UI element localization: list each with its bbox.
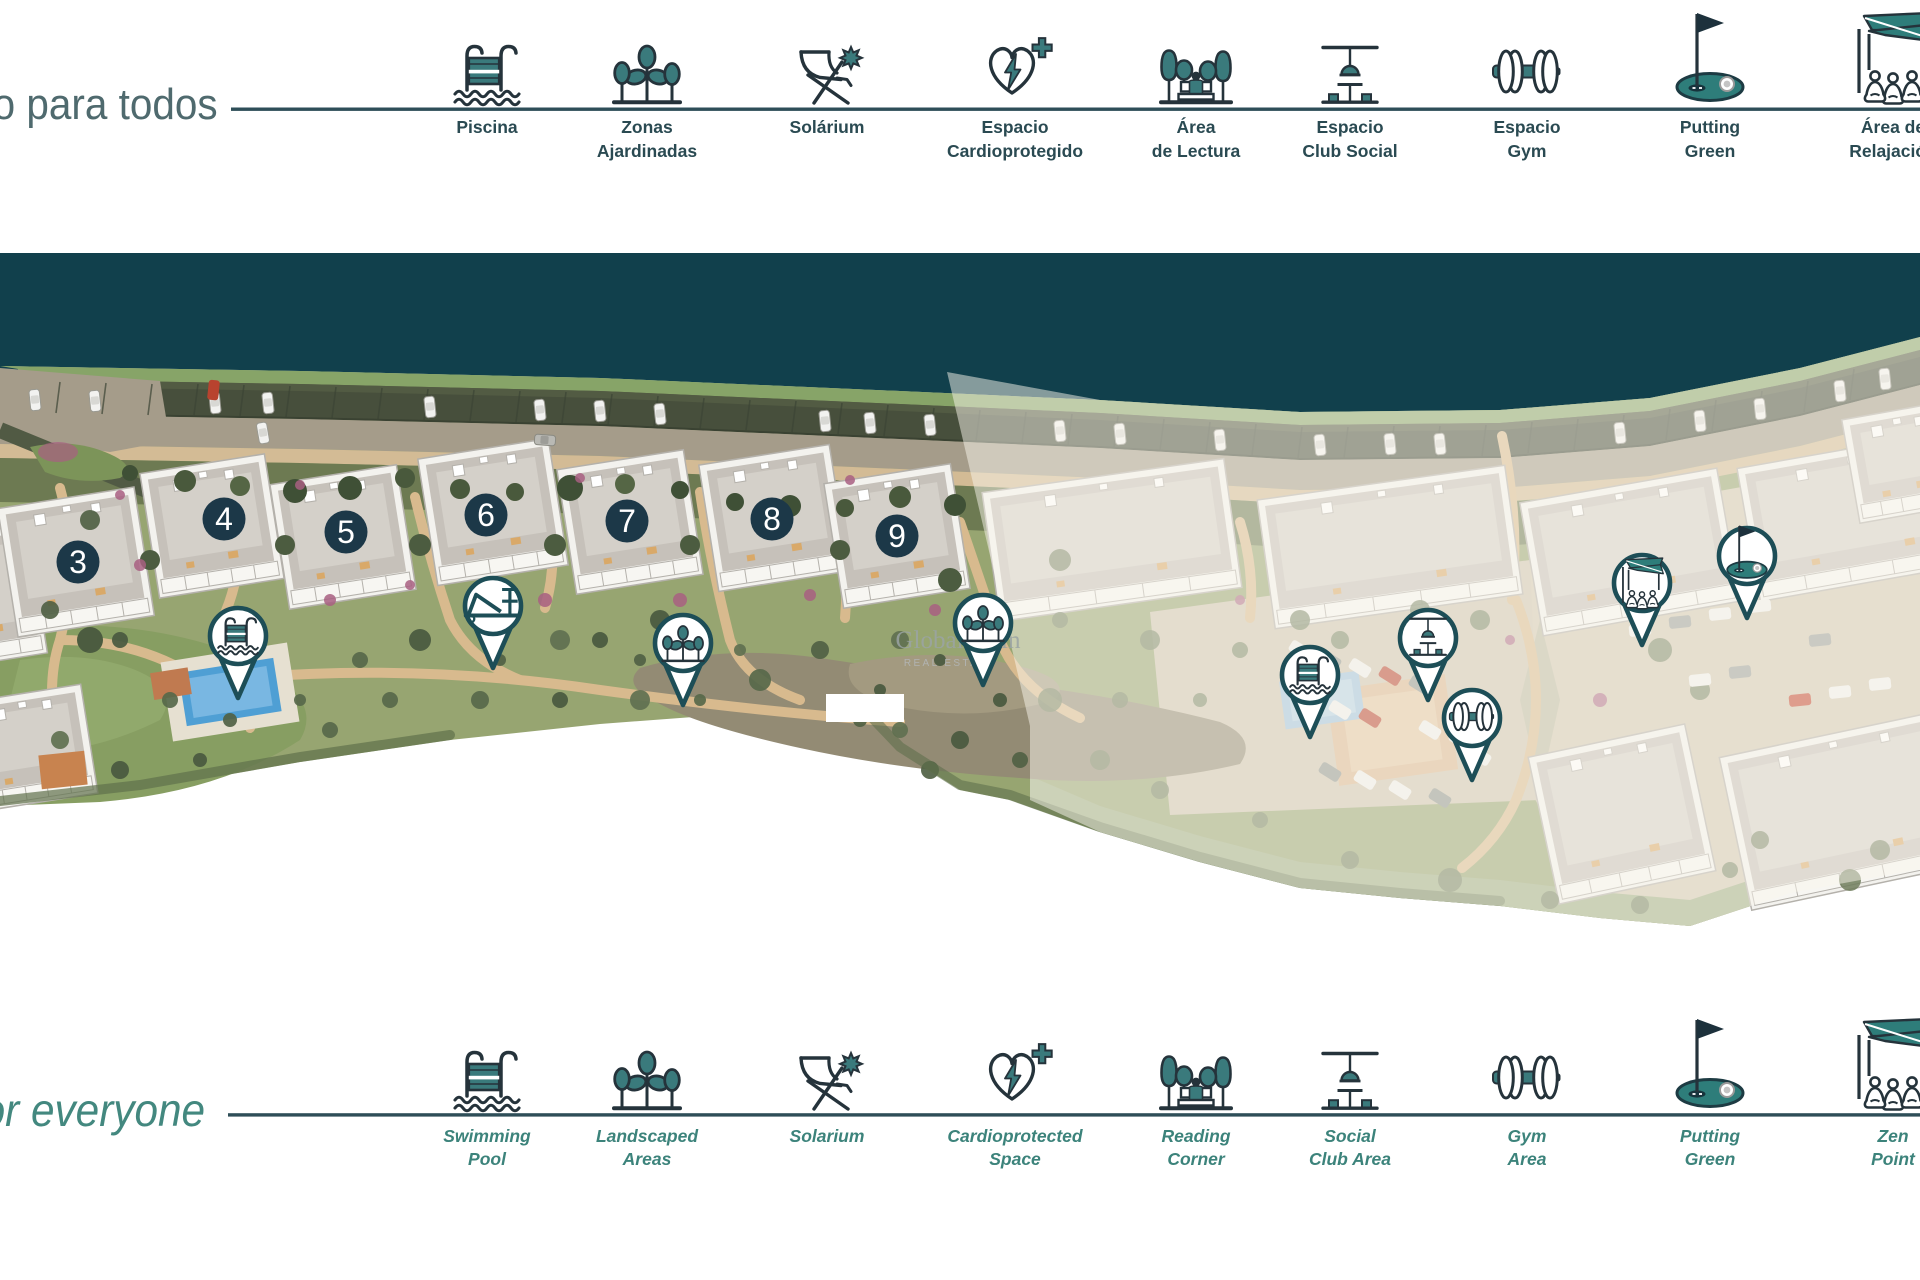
svg-text:6: 6 bbox=[477, 497, 495, 533]
svg-text:Social: Social bbox=[1324, 1126, 1377, 1146]
svg-text:Areas: Areas bbox=[622, 1149, 672, 1169]
svg-text:Green: Green bbox=[1685, 141, 1736, 161]
svg-text:Space: Space bbox=[989, 1149, 1041, 1169]
svg-text:Gym: Gym bbox=[1508, 141, 1547, 161]
svg-text:Point: Point bbox=[1871, 1149, 1916, 1169]
svg-text:Ajardinadas: Ajardinadas bbox=[597, 141, 697, 161]
svg-text:Putting: Putting bbox=[1680, 1126, 1741, 1146]
svg-text:Solárium: Solárium bbox=[790, 117, 865, 137]
svg-text:Corner: Corner bbox=[1167, 1149, 1226, 1169]
svg-text:Área: Área bbox=[1177, 116, 1216, 137]
svg-text:4: 4 bbox=[215, 501, 233, 537]
svg-text:Zen: Zen bbox=[1876, 1126, 1908, 1146]
svg-text:de Lectura: de Lectura bbox=[1152, 141, 1241, 161]
svg-text:Gym: Gym bbox=[1508, 1126, 1547, 1146]
svg-text:Área de: Área de bbox=[1861, 116, 1920, 137]
svg-text:Landscaped: Landscaped bbox=[596, 1126, 698, 1146]
svg-text:8: 8 bbox=[763, 501, 781, 537]
svg-text:Green: Green bbox=[1685, 1149, 1736, 1169]
svg-text:Relajación: Relajación bbox=[1849, 141, 1920, 161]
svg-text:9: 9 bbox=[888, 518, 906, 554]
svg-text:Putting: Putting bbox=[1680, 117, 1740, 137]
svg-text:Solarium: Solarium bbox=[790, 1126, 865, 1146]
svg-text:3: 3 bbox=[69, 544, 87, 580]
svg-text:Cardioprotected: Cardioprotected bbox=[947, 1126, 1082, 1146]
svg-text:Cardioprotegido: Cardioprotegido bbox=[947, 141, 1083, 161]
svg-text:Pool: Pool bbox=[468, 1149, 507, 1169]
svg-text:Reading: Reading bbox=[1161, 1126, 1230, 1146]
svg-text:7: 7 bbox=[618, 503, 636, 539]
svg-text:Espacio: Espacio bbox=[981, 117, 1048, 137]
svg-text:Piscina: Piscina bbox=[456, 117, 518, 137]
svg-text:Area: Area bbox=[1507, 1149, 1547, 1169]
svg-text:5: 5 bbox=[337, 514, 355, 550]
svg-text:or everyone: or everyone bbox=[0, 1085, 205, 1136]
svg-text:o para todos: o para todos bbox=[0, 79, 218, 128]
svg-text:Club Social: Club Social bbox=[1302, 141, 1397, 161]
svg-text:Zonas: Zonas bbox=[621, 117, 673, 137]
svg-text:Espacio: Espacio bbox=[1316, 117, 1383, 137]
svg-text:Espacio: Espacio bbox=[1493, 117, 1560, 137]
svg-text:Swimming: Swimming bbox=[443, 1126, 531, 1146]
svg-text:Club Area: Club Area bbox=[1309, 1149, 1391, 1169]
